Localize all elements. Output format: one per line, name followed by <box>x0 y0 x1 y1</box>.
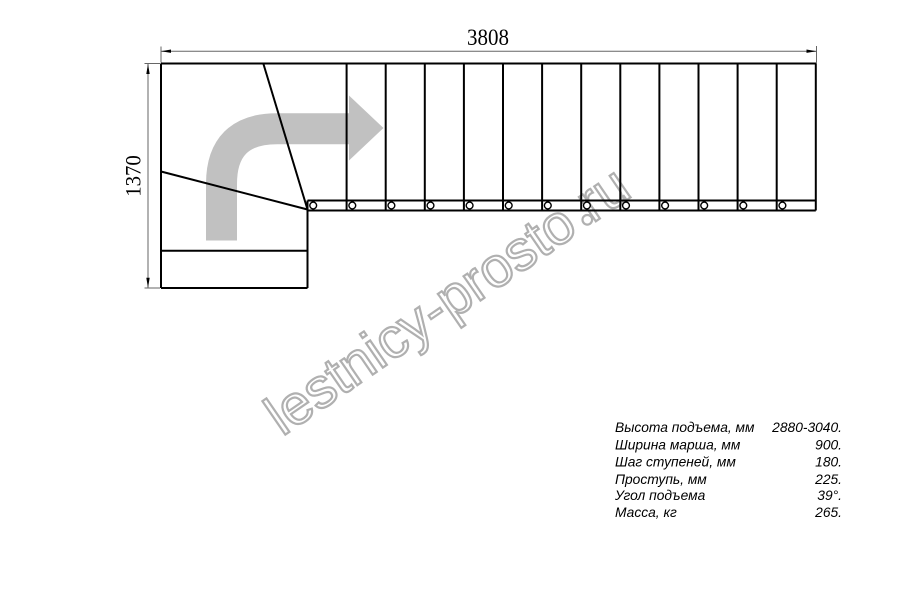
svg-text:225.: 225. <box>814 472 842 487</box>
svg-text:3808: 3808 <box>467 25 509 51</box>
svg-text:180.: 180. <box>815 455 842 470</box>
svg-text:Шаг ступеней, мм: Шаг ступеней, мм <box>615 455 736 470</box>
svg-text:265.: 265. <box>814 505 842 520</box>
svg-text:Проступь, мм: Проступь, мм <box>615 472 707 487</box>
svg-text:900.: 900. <box>815 437 842 452</box>
svg-text:1370: 1370 <box>121 155 146 197</box>
svg-text:2880-3040.: 2880-3040. <box>771 420 842 435</box>
svg-text:Ширина марша, мм: Ширина марша, мм <box>615 437 741 452</box>
svg-text:Высота подъема, мм: Высота подъема, мм <box>615 420 755 435</box>
svg-text:lestnicy-prosto ru: lestnicy-prosto ru <box>253 153 640 446</box>
svg-text:39°.: 39°. <box>817 488 842 503</box>
svg-text:Масса, кг: Масса, кг <box>615 505 677 520</box>
svg-text:Угол подъема: Угол подъема <box>614 488 706 503</box>
